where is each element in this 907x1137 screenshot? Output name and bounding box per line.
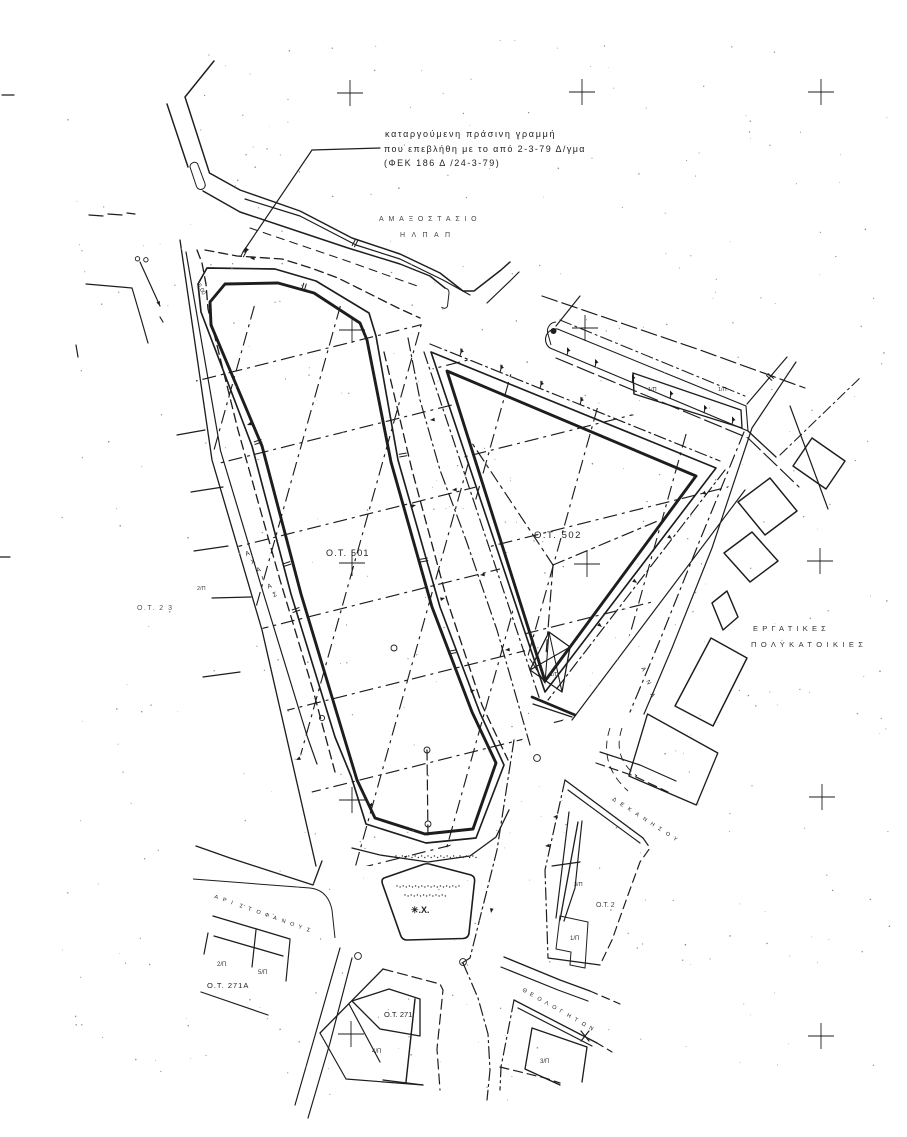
svg-text:Ο.Τ. 271Α: Ο.Τ. 271Α: [207, 981, 249, 990]
svg-text:3/Π: 3/Π: [574, 882, 583, 888]
svg-text:Ο.Τ. 502: Ο.Τ. 502: [534, 530, 582, 541]
svg-text:2/Π: 2/Π: [197, 586, 206, 592]
svg-text:Ο.Τ. 2 3: Ο.Τ. 2 3: [137, 605, 174, 612]
svg-text:ΑΜΑΞΟΣΤΑΣΙΟ: ΑΜΑΞΟΣΤΑΣΙΟ: [379, 216, 481, 223]
svg-text:5/Π: 5/Π: [258, 970, 267, 976]
svg-text:1/Π: 1/Π: [570, 936, 579, 942]
svg-text:ΠΟΛΥΚΑΤΟΙΚΙΕΣ: ΠΟΛΥΚΑΤΟΙΚΙΕΣ: [751, 640, 867, 649]
svg-text:2/Π: 2/Π: [217, 962, 226, 968]
svg-text:(ΦΕΚ 186 Δ /24-3-79): (ΦΕΚ 186 Δ /24-3-79): [384, 158, 500, 168]
svg-text:Ο.Τ. 271: Ο.Τ. 271: [384, 1010, 412, 1019]
svg-text:Ο.Τ. 501: Ο.Τ. 501: [326, 548, 370, 558]
svg-text:4/Π: 4/Π: [372, 1049, 381, 1055]
svg-text:1/Π: 1/Π: [550, 672, 559, 678]
svg-text:3/Π: 3/Π: [540, 1059, 549, 1065]
svg-text:1/Π: 1/Π: [648, 387, 657, 393]
svg-text:✳.Χ.: ✳.Χ.: [411, 905, 430, 915]
svg-text:Ο.Τ. 2: Ο.Τ. 2: [596, 902, 615, 909]
svg-text:ΗΛΠΑΠ: ΗΛΠΑΠ: [400, 232, 457, 239]
svg-text:που επεβλήθη με το από 2-3-79: που επεβλήθη με το από 2-3-79 Δ/γμα: [384, 144, 586, 154]
svg-text:ΕΡΓΑΤΙΚΕΣ: ΕΡΓΑΤΙΚΕΣ: [753, 624, 830, 633]
svg-text:καταργούμενη πράσινη γραμμή: καταργούμενη πράσινη γραμμή: [385, 129, 556, 139]
